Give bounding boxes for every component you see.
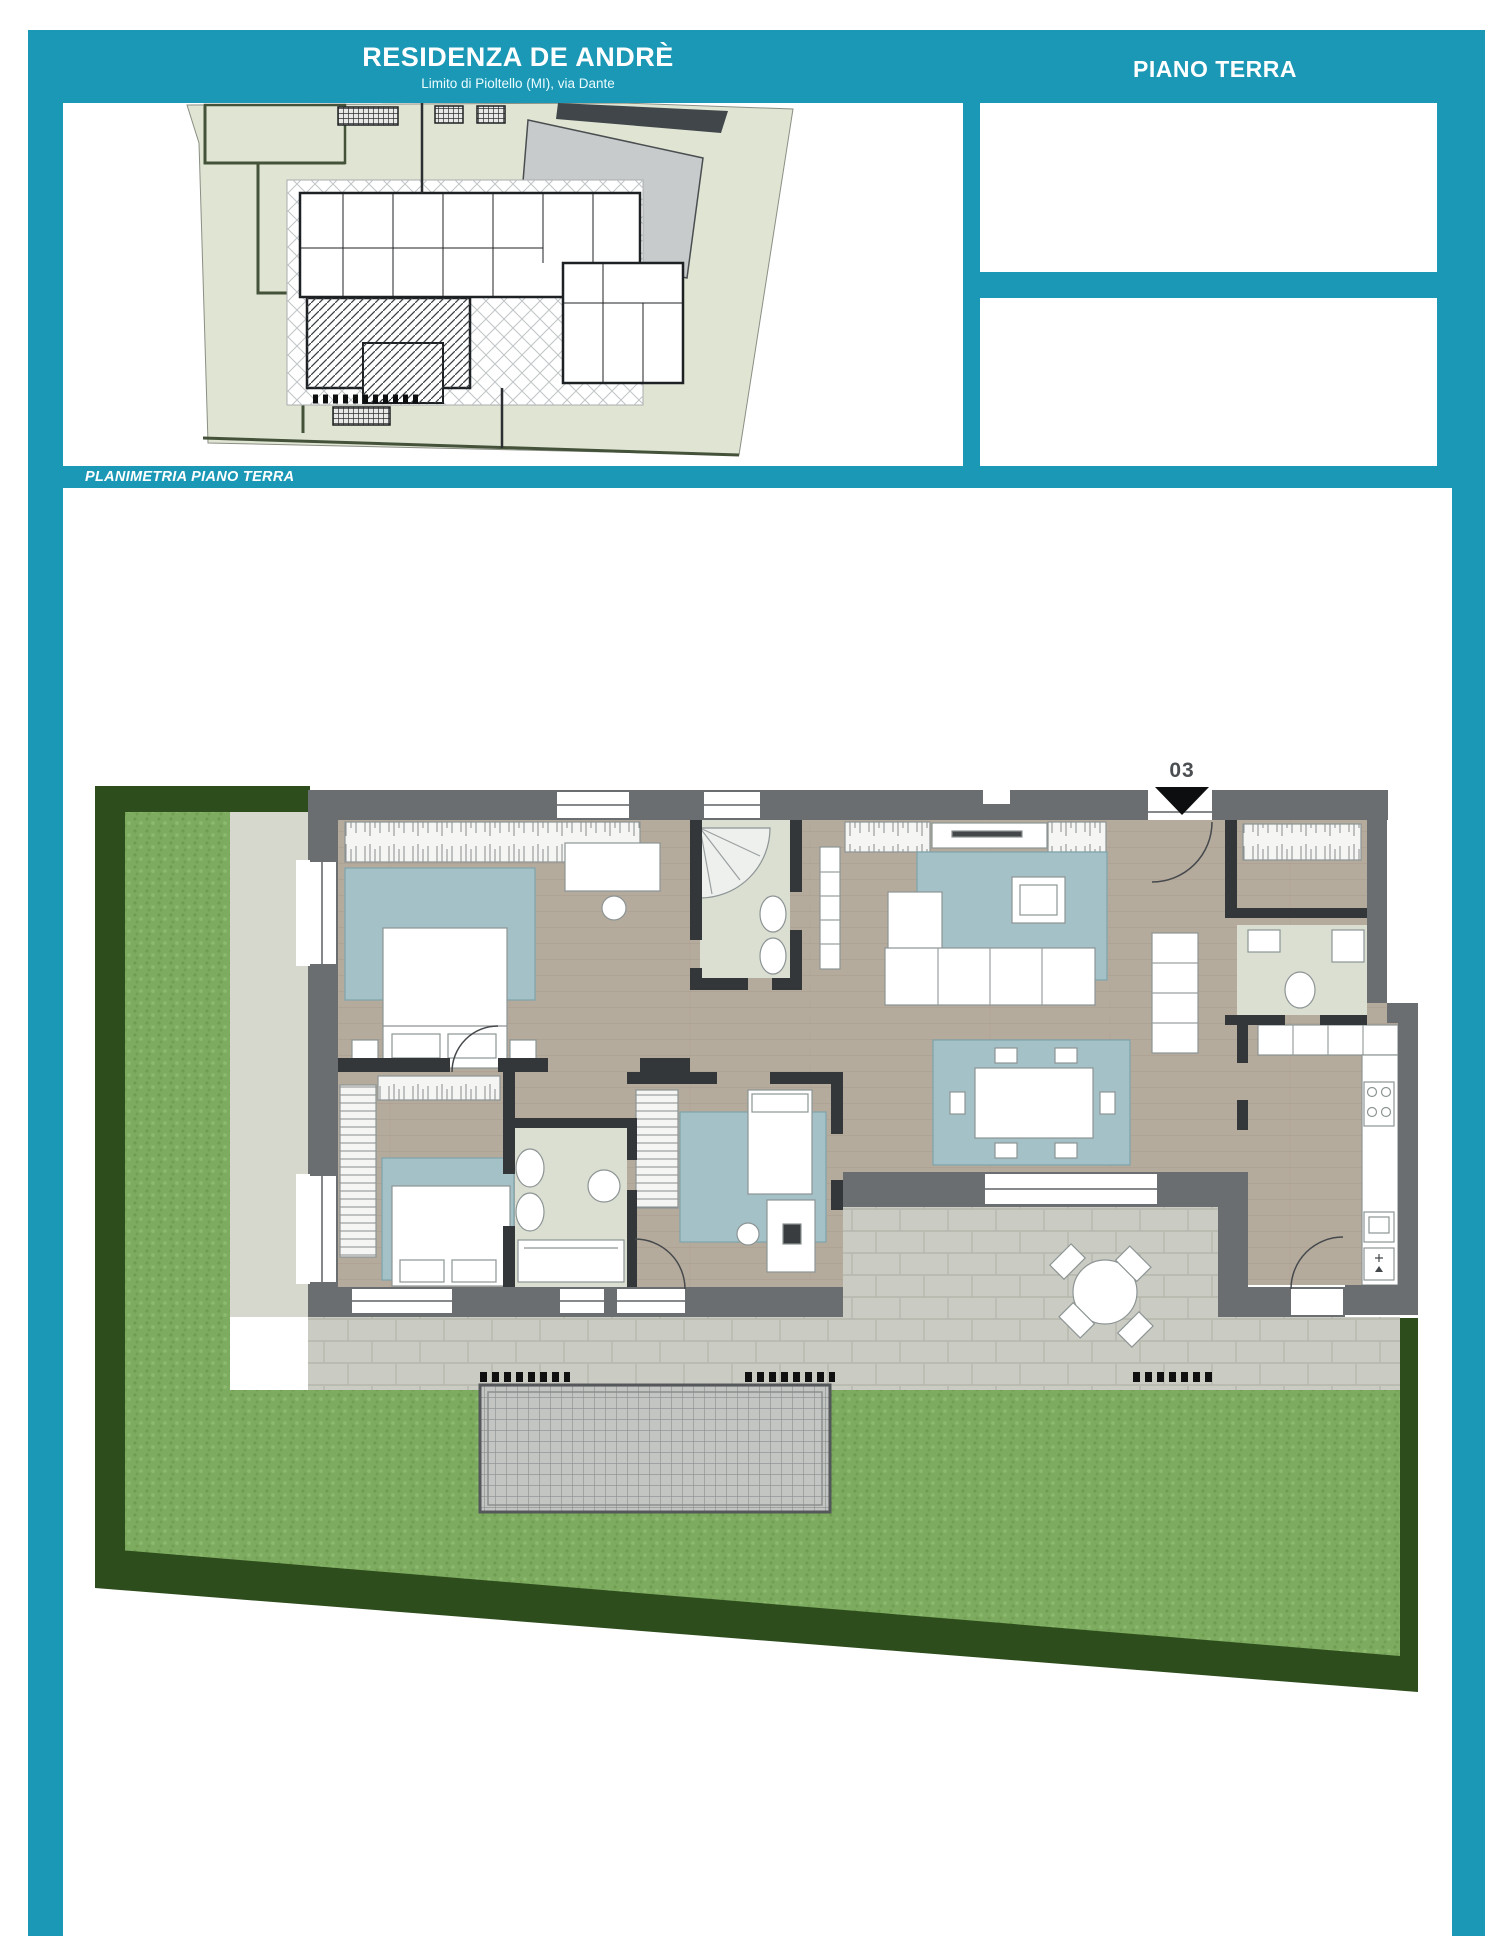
page-title: RESIDENZA DE ANDRÈ bbox=[238, 42, 798, 73]
brochure-page: RESIDENZA DE ANDRÈ Limito di Pioltello (… bbox=[0, 0, 1500, 1936]
entrance-triangle-icon bbox=[1155, 787, 1209, 815]
floor-plan-image bbox=[0, 488, 1500, 1936]
info-box-top bbox=[980, 103, 1437, 272]
info-box-bottom bbox=[980, 298, 1437, 466]
page-subtitle: Limito di Pioltello (MI), via Dante bbox=[238, 76, 798, 91]
site-plan-box bbox=[63, 103, 963, 466]
unit-03-marker: 03 bbox=[1158, 759, 1206, 783]
pergola bbox=[480, 1385, 830, 1512]
header-panel: RESIDENZA DE ANDRÈ Limito di Pioltello (… bbox=[28, 30, 1485, 488]
floor-title: PIANO TERRA bbox=[1000, 56, 1430, 83]
plan-section-label: PLANIMETRIA PIANO TERRA bbox=[85, 467, 294, 488]
unit-number: 03 bbox=[1169, 759, 1194, 782]
site-plan-image bbox=[63, 103, 963, 466]
